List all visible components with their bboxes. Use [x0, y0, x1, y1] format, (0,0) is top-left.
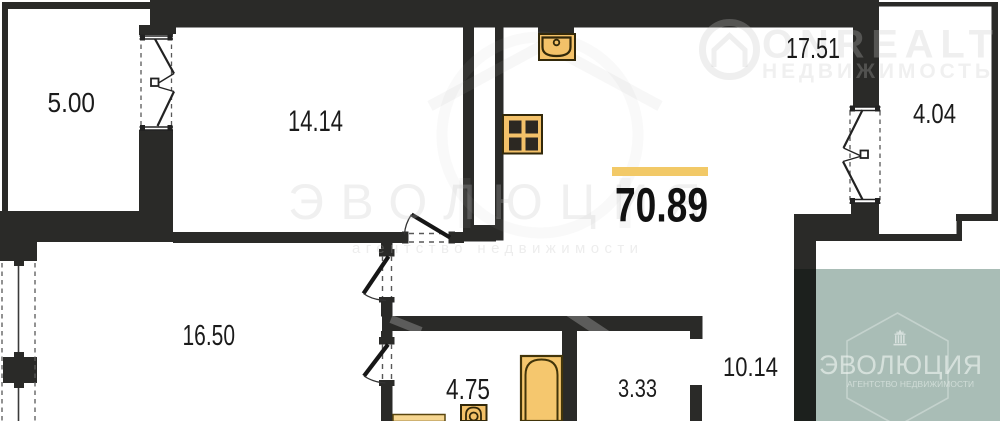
svg-text:АГЕНТСТВО НЕДВИЖИМОСТИ: АГЕНТСТВО НЕДВИЖИМОСТИ	[847, 379, 974, 389]
svg-text:14.14: 14.14	[288, 105, 343, 138]
svg-text:16.50: 16.50	[183, 320, 236, 352]
svg-text:5.00: 5.00	[48, 87, 96, 118]
svg-text:4.75: 4.75	[446, 374, 490, 406]
svg-text:ЭВОЛЮЦИЯ: ЭВОЛЮЦИЯ	[819, 350, 982, 380]
svg-text:10.14: 10.14	[723, 352, 778, 382]
svg-text:17.51: 17.51	[786, 33, 840, 65]
svg-text:4.04: 4.04	[913, 98, 956, 129]
svg-text:70.89: 70.89	[615, 180, 708, 233]
svg-text:агентство недвижимости: агентство недвижимости	[352, 240, 642, 257]
svg-text:3.33: 3.33	[618, 375, 657, 403]
